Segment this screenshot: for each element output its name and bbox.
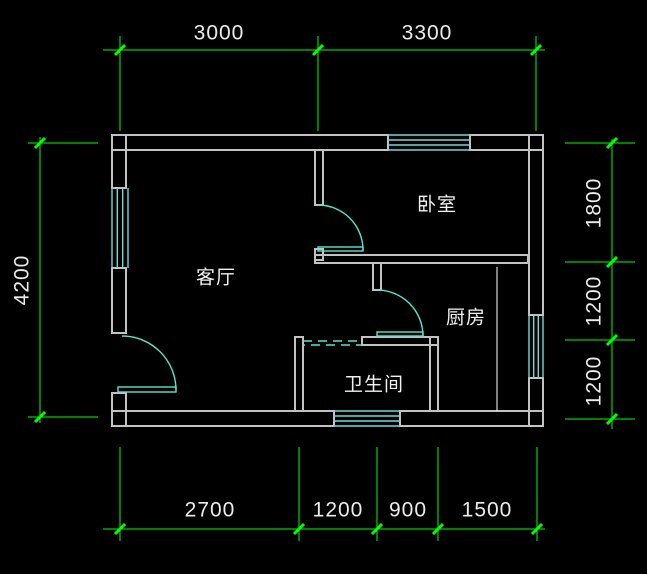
wall-kitchen-door-stub <box>373 263 381 290</box>
wall-bathroom-kitchen <box>430 337 438 411</box>
door-kitchen-leaf <box>377 332 423 336</box>
floor-plan-drawing <box>0 0 647 574</box>
door-bedroom-arc <box>318 205 363 250</box>
dim-label-bottom-1500: 1500 <box>462 500 513 521</box>
wall-top-left <box>112 135 388 150</box>
room-label-living: 客厅 <box>196 269 236 288</box>
wall-bathroom-top <box>362 337 438 345</box>
room-label-kitchen: 厨房 <box>446 309 486 328</box>
door-entrance-arc <box>122 336 176 390</box>
wall-right-upper <box>529 135 543 315</box>
door-bedroom <box>318 205 363 251</box>
dim-chain-left <box>28 137 98 423</box>
dim-label-top-3300: 3300 <box>402 23 453 44</box>
door-bedroom-leaf <box>318 247 363 251</box>
dim-label-right-1200b: 1200 <box>584 356 605 407</box>
wall-bottom-left <box>112 411 334 426</box>
door-bathroom-sliding <box>303 341 362 345</box>
floor-plan-canvas: 3000 3300 2700 1200 900 1500 4200 1800 1… <box>0 0 647 574</box>
door-kitchen-arc <box>377 290 423 336</box>
wall-bathroom-left <box>295 337 303 411</box>
dim-label-right-1800: 1800 <box>584 178 605 229</box>
room-label-bathroom: 卫生间 <box>344 376 404 395</box>
wall-left-upper <box>112 135 126 188</box>
wall-right-lower <box>529 378 543 426</box>
dim-label-left-4200: 4200 <box>12 255 33 306</box>
windows <box>112 135 543 426</box>
dim-chain-top <box>103 36 545 131</box>
doors <box>118 205 423 392</box>
dim-chain-bottom <box>103 447 545 541</box>
wall-top-right <box>470 135 543 150</box>
wall-left-mid <box>112 268 126 333</box>
dim-label-right-1200a: 1200 <box>584 276 605 327</box>
door-kitchen <box>377 290 423 336</box>
window-bedroom-north <box>388 135 470 150</box>
wall-bedroom-kitchen <box>315 255 528 263</box>
dim-label-bottom-2700: 2700 <box>185 500 236 521</box>
room-label-bedroom: 卧室 <box>417 196 457 215</box>
wall-left-lower <box>112 393 126 426</box>
walls <box>112 135 543 426</box>
window-living-west <box>112 188 128 268</box>
window-kitchen-east <box>529 315 543 378</box>
door-entrance-leaf <box>118 387 176 392</box>
window-bathroom-south <box>334 411 400 426</box>
dim-label-bottom-900: 900 <box>389 500 427 521</box>
wall-bottom-right <box>400 411 543 426</box>
door-entrance <box>118 336 176 392</box>
wall-living-bedroom-stub <box>315 150 323 205</box>
dim-label-bottom-1200: 1200 <box>313 500 364 521</box>
dim-label-top-3000: 3000 <box>194 23 245 44</box>
